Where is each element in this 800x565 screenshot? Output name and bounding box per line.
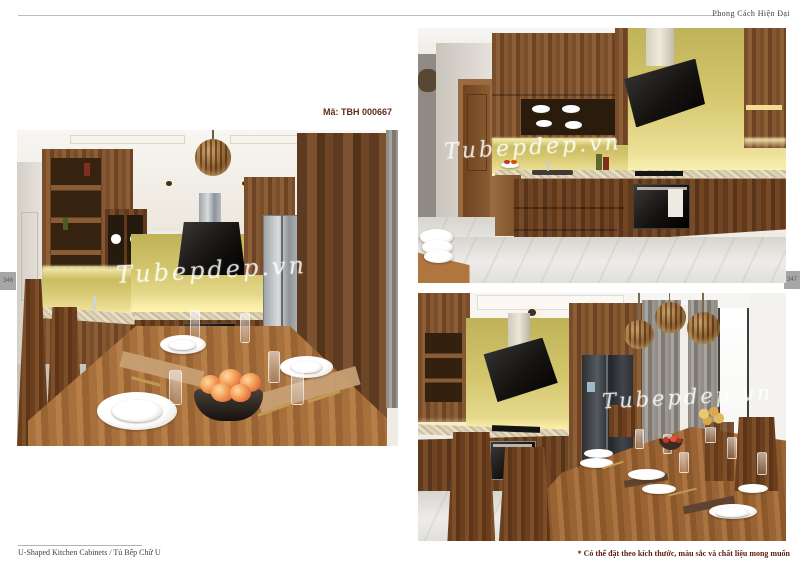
wine-glass <box>635 429 644 449</box>
drawer-line <box>514 229 617 231</box>
pendant-lamp <box>655 302 686 333</box>
plate <box>565 121 582 129</box>
wine-glass <box>727 437 737 459</box>
page-number-right: 347 <box>784 271 800 289</box>
cooktop <box>492 425 540 433</box>
bottle <box>603 157 608 170</box>
plate <box>628 469 665 480</box>
plate <box>738 484 767 493</box>
faucet <box>93 296 96 310</box>
curtain <box>386 130 398 408</box>
pendant-lamp <box>195 139 231 175</box>
product-code: Mã: TBH 000667 <box>238 107 392 117</box>
plate <box>169 340 196 351</box>
wine-glass <box>268 351 279 383</box>
footer-divider <box>18 545 142 546</box>
wine-glass <box>291 370 303 405</box>
lamp-cord <box>638 293 639 323</box>
refrigerator-display <box>587 382 594 392</box>
pendant-lamp <box>687 312 720 344</box>
plate <box>112 400 162 422</box>
photo-u-kitchen-dining: Tubepdep.vn <box>17 130 398 446</box>
page-number-left: 346 <box>0 272 16 290</box>
towel <box>668 189 683 217</box>
wine-glass <box>679 452 689 473</box>
ceiling-molding <box>70 135 184 144</box>
plate <box>562 105 580 113</box>
wine-glass <box>190 310 200 338</box>
plate <box>111 234 122 243</box>
lamp-cord <box>702 293 703 314</box>
catalog-page: Phong Cách Hiện Đại Mã: TBH 000667 346 3… <box>0 0 800 565</box>
footer-note: * Có thể đặt theo kích thước, màu sắc và… <box>578 549 790 558</box>
fruit <box>663 437 670 442</box>
dining-chair <box>447 432 495 541</box>
header-divider <box>18 15 720 16</box>
shelf-bottle <box>84 163 90 176</box>
sink <box>532 170 572 175</box>
footer-caption: U-Shaped Kitchen Cabinets / Tủ Bếp Chữ U <box>18 548 161 557</box>
wine-glass <box>169 370 181 405</box>
under-cabinet-light <box>744 138 786 148</box>
open-shelf-unit <box>51 158 101 265</box>
cooktop <box>635 171 683 177</box>
photo-kitchen-dining-view: Tubepdep.vn <box>418 293 786 541</box>
pendant-lamp <box>624 320 653 349</box>
wine-glass <box>240 313 250 343</box>
hood-chimney <box>646 28 674 66</box>
peach <box>230 384 251 401</box>
ceiling-spotlight <box>166 181 173 186</box>
shelf-bottle <box>63 218 69 229</box>
cabinet-divider <box>492 94 632 96</box>
floor <box>418 237 786 283</box>
plate <box>642 484 675 494</box>
flower-vase <box>705 427 716 443</box>
right-upper-cabinet <box>744 28 786 148</box>
plate <box>532 105 550 113</box>
ceiling-fan <box>418 69 438 92</box>
photo-kitchen-side-view: Tubepdep.vn <box>418 28 786 283</box>
lit-shelf <box>746 105 783 110</box>
plate-stack <box>424 250 453 263</box>
faucet <box>547 161 550 171</box>
under-cabinet-light <box>131 294 272 313</box>
dining-chair <box>499 447 551 541</box>
drawer-line <box>514 207 624 209</box>
wine-glass <box>757 452 767 476</box>
open-shelf-unit <box>425 333 462 402</box>
style-category-label: Phong Cách Hiện Đại <box>712 9 790 18</box>
